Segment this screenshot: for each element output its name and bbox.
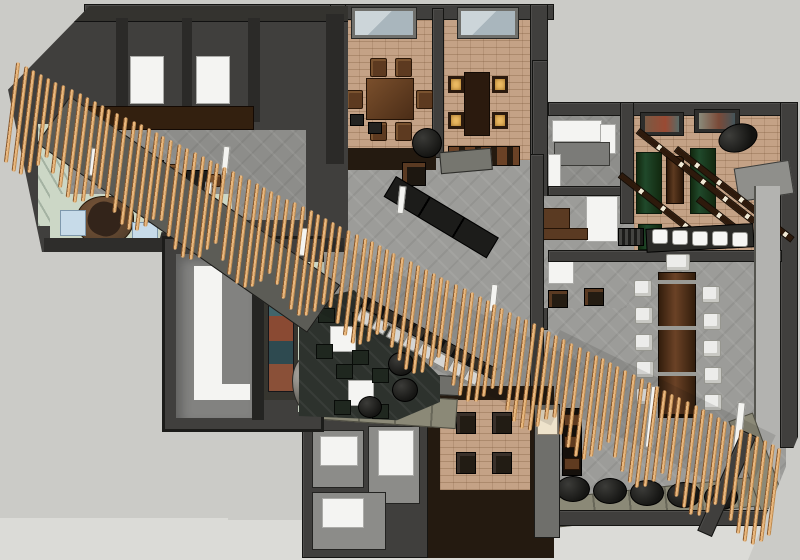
lounge-pouf bbox=[392, 378, 418, 402]
lounge-chair bbox=[352, 350, 369, 365]
dining-chair bbox=[416, 90, 433, 109]
round-table bbox=[412, 128, 442, 158]
wall-bottom-right bbox=[544, 510, 770, 526]
wine-cubby bbox=[564, 436, 580, 448]
communal-end-chair bbox=[666, 254, 690, 271]
restroom-fixture bbox=[320, 436, 358, 466]
lounge-chair bbox=[316, 344, 333, 359]
dining-chair bbox=[395, 122, 412, 141]
dining-chair bbox=[395, 58, 412, 77]
booth-chair bbox=[456, 412, 476, 434]
skylight-room-b bbox=[458, 8, 518, 38]
restroom-fixture bbox=[378, 430, 414, 476]
bar-grill bbox=[618, 228, 644, 246]
light-feature-vertical bbox=[194, 266, 222, 384]
lounge-pouf bbox=[358, 396, 382, 418]
side-table bbox=[584, 288, 604, 306]
office-sofa-return bbox=[542, 228, 588, 240]
lounge-chair bbox=[334, 400, 351, 415]
booth-chair bbox=[492, 412, 512, 434]
wing-top-band bbox=[68, 6, 348, 22]
exterior-patch-bottom-left bbox=[228, 428, 304, 520]
lit-chair bbox=[448, 76, 464, 93]
wine-cubby bbox=[564, 458, 580, 470]
office-sofa bbox=[542, 208, 570, 230]
dining-chair bbox=[370, 58, 387, 77]
wall-pantry-office bbox=[548, 186, 628, 196]
dining-chair bbox=[346, 90, 363, 109]
floorplan-render bbox=[0, 0, 800, 560]
pantry-counter bbox=[552, 120, 602, 142]
window-light bbox=[130, 56, 164, 104]
lounge-chair bbox=[336, 364, 353, 379]
office-whiteboard bbox=[586, 196, 618, 242]
small-stool bbox=[368, 122, 382, 134]
small-stool bbox=[350, 114, 364, 126]
booth-chair bbox=[456, 452, 476, 474]
wing-partition bbox=[116, 18, 128, 110]
window-light bbox=[196, 56, 230, 104]
restroom-fixture bbox=[322, 498, 364, 528]
light-feature-foot bbox=[194, 384, 250, 400]
skylight-room-a bbox=[352, 8, 416, 38]
lounge-chair bbox=[372, 368, 389, 383]
dining-table-b bbox=[464, 72, 490, 136]
wall-game-left bbox=[620, 102, 634, 224]
lit-chair bbox=[448, 112, 464, 129]
booth-chair bbox=[492, 452, 512, 474]
wing-partition bbox=[182, 18, 192, 110]
lit-chair bbox=[492, 76, 508, 93]
dining-table-a bbox=[366, 78, 414, 120]
reception-seat bbox=[60, 210, 86, 236]
wing-right-wall bbox=[326, 14, 344, 164]
lit-chair bbox=[492, 112, 508, 129]
buffet-counter bbox=[439, 148, 493, 174]
lounge-table bbox=[330, 326, 356, 352]
pantry-worktop bbox=[554, 142, 610, 166]
wall-building-right bbox=[780, 102, 798, 448]
side-table bbox=[548, 290, 568, 308]
